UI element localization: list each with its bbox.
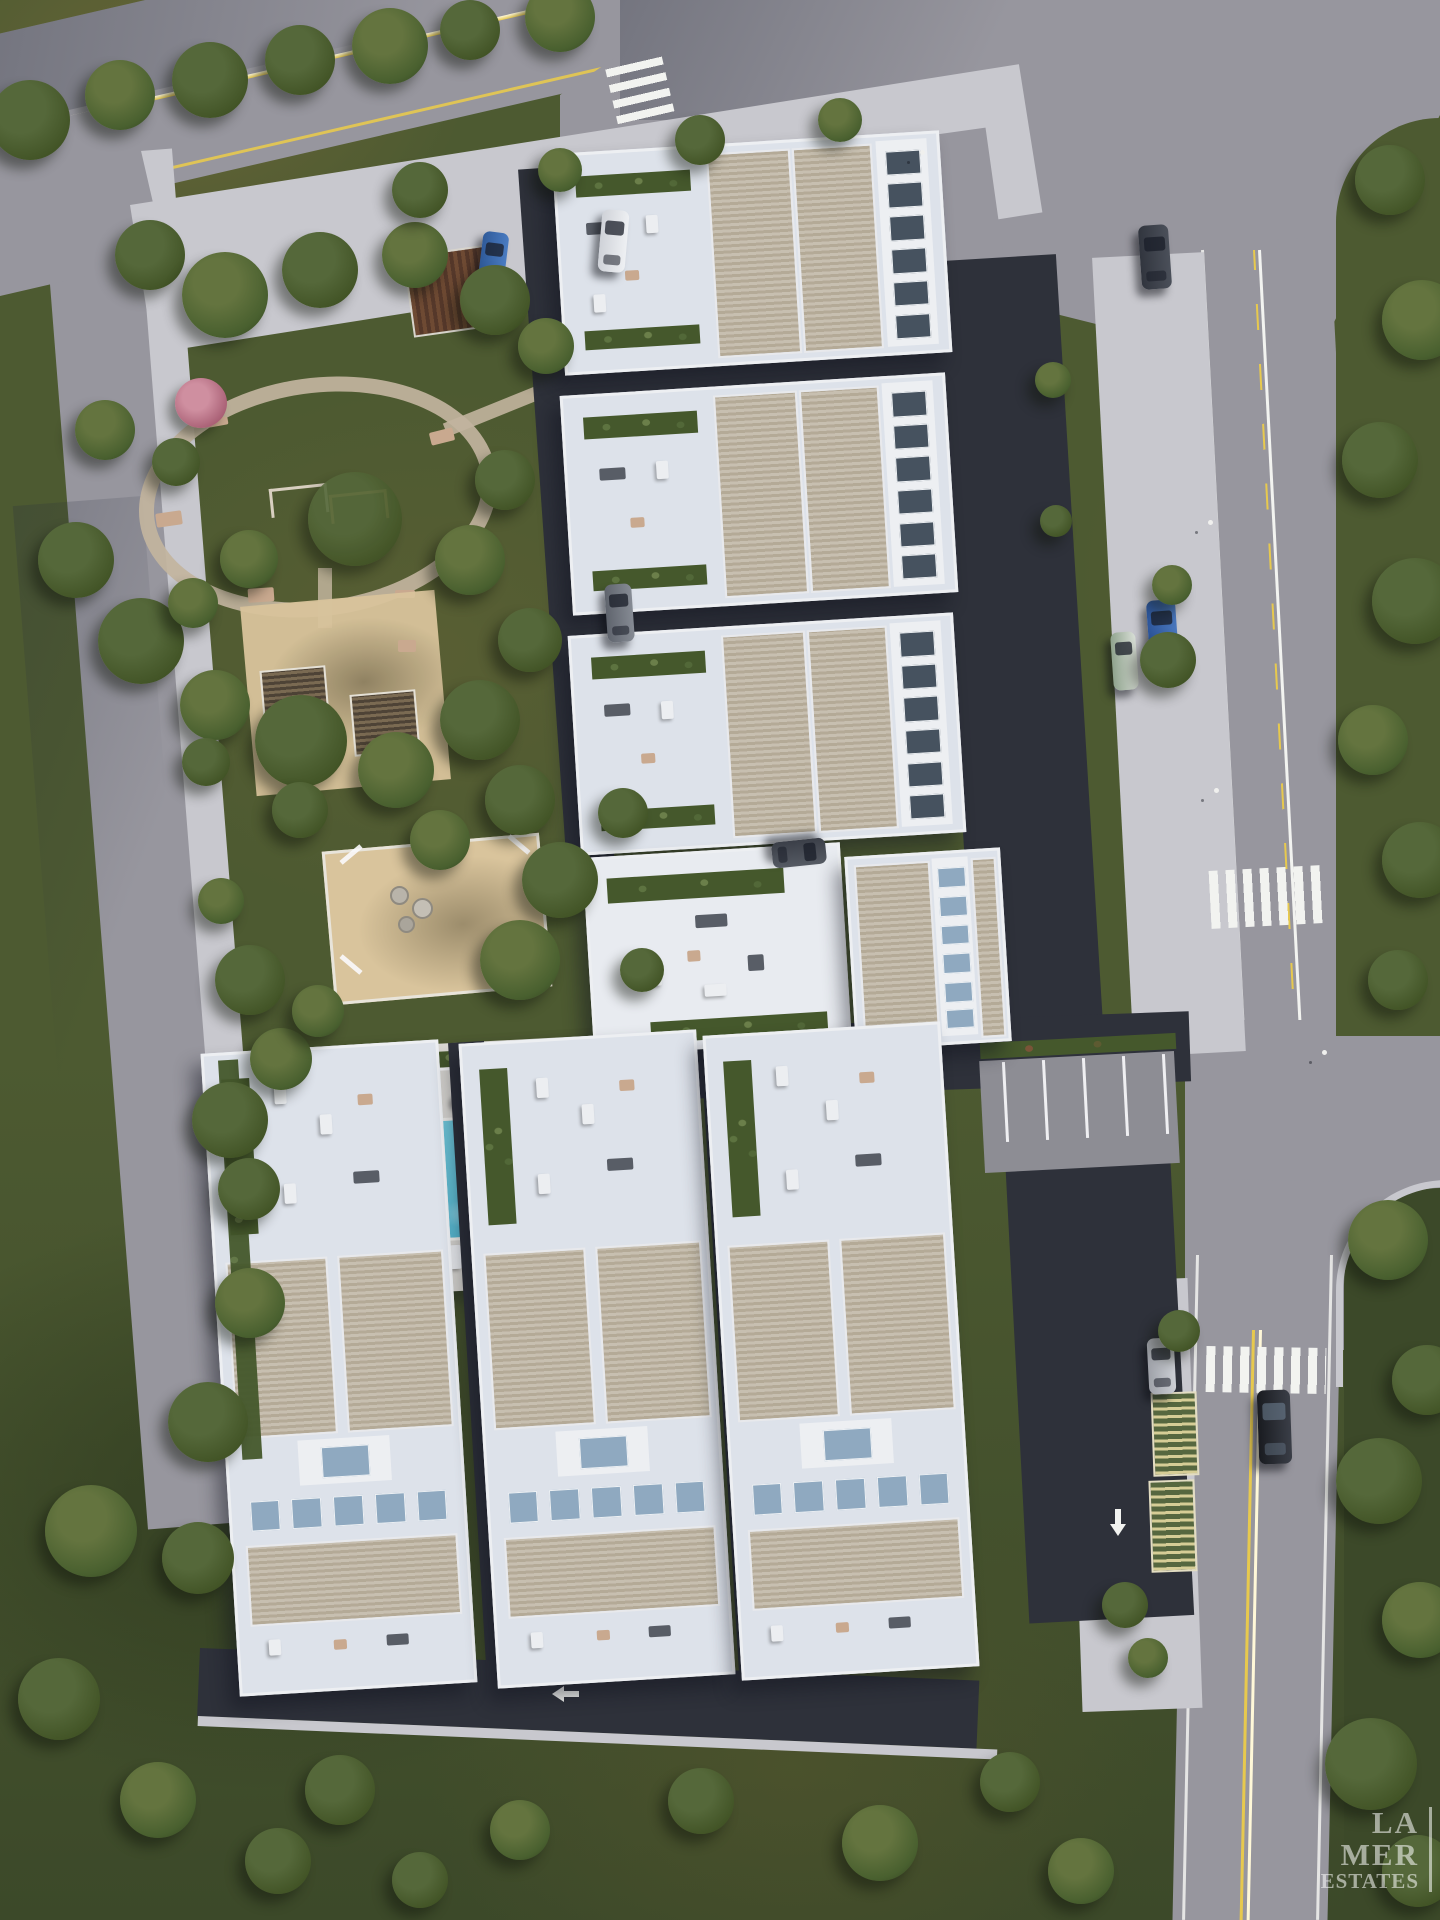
pergola-table xyxy=(398,640,416,652)
tree xyxy=(410,810,470,870)
tree xyxy=(245,1828,311,1894)
apartment-block-6 xyxy=(703,1021,980,1680)
louvered-pergola xyxy=(1148,1479,1197,1573)
street-lamp-icon xyxy=(1322,1050,1327,1055)
tree xyxy=(120,1762,196,1838)
tree xyxy=(1158,1310,1200,1352)
picnic-table xyxy=(248,587,275,603)
tree xyxy=(152,438,200,486)
tree xyxy=(182,252,268,338)
drive-arrow-left-icon xyxy=(552,1686,564,1702)
apartment-block-5 xyxy=(459,1029,736,1688)
tree xyxy=(440,680,520,760)
tree xyxy=(168,578,218,628)
tree xyxy=(75,400,135,460)
tree xyxy=(1035,362,1071,398)
tree xyxy=(1342,422,1418,498)
tree xyxy=(675,115,725,165)
tree xyxy=(1336,1438,1422,1524)
tree xyxy=(382,222,448,288)
tree xyxy=(522,842,598,918)
car-van-street xyxy=(1110,631,1139,691)
tree xyxy=(168,1382,248,1462)
tree xyxy=(1368,950,1428,1010)
tree xyxy=(598,788,648,838)
tree xyxy=(255,695,347,787)
tree xyxy=(620,948,664,992)
drive-arrow-down-icon xyxy=(1110,1524,1126,1536)
tree xyxy=(435,525,505,595)
tree xyxy=(1048,1838,1114,1904)
tree xyxy=(1128,1638,1168,1678)
east-exit-road xyxy=(1280,1030,1440,1195)
tree xyxy=(182,738,230,786)
guest-parking xyxy=(979,1051,1180,1173)
tree xyxy=(215,1268,285,1338)
car-gray-street-north xyxy=(1138,224,1172,290)
aerial-site-render: LA MER ESTATES xyxy=(0,0,1440,1920)
louvered-pergola xyxy=(1151,1391,1200,1477)
tree xyxy=(1348,1200,1428,1280)
tree xyxy=(392,162,448,218)
crosswalk-east-upper xyxy=(1209,865,1324,929)
tree xyxy=(485,765,555,835)
tree xyxy=(308,472,402,566)
play-spinner xyxy=(412,898,433,919)
tree xyxy=(85,60,155,130)
tree xyxy=(668,1768,734,1834)
street-lamp-icon xyxy=(920,150,925,155)
tree xyxy=(192,1082,268,1158)
tree xyxy=(162,1522,234,1594)
tree xyxy=(818,98,862,142)
tree xyxy=(1325,1718,1417,1810)
tree xyxy=(18,1658,100,1740)
street-lamp-icon xyxy=(1214,788,1219,793)
tree xyxy=(1140,632,1196,688)
tree xyxy=(292,985,344,1037)
tree xyxy=(305,1755,375,1825)
tree xyxy=(475,450,535,510)
tree xyxy=(38,522,114,598)
car-white-top xyxy=(597,209,629,273)
tree xyxy=(358,732,434,808)
tree xyxy=(1152,565,1192,605)
watermark-line-3: ESTATES xyxy=(1321,1871,1419,1892)
tree xyxy=(460,265,530,335)
tree xyxy=(1355,145,1425,215)
tree xyxy=(1040,505,1072,537)
tree xyxy=(518,318,574,374)
tree xyxy=(980,1752,1040,1812)
watermark-logo: LA MER ESTATES xyxy=(1321,1807,1432,1892)
tree xyxy=(115,220,185,290)
watermark-line-1: LA xyxy=(1372,1807,1419,1839)
tree xyxy=(1102,1582,1148,1628)
tree xyxy=(480,920,560,1000)
street-lamp-icon xyxy=(1208,520,1213,525)
crosswalk-east-lower xyxy=(1206,1346,1327,1394)
tree xyxy=(498,608,562,672)
watermark-line-2: MER xyxy=(1341,1839,1419,1871)
tree xyxy=(250,1028,312,1090)
tree xyxy=(218,1158,280,1220)
tree xyxy=(220,530,278,588)
tree xyxy=(180,670,250,740)
tree xyxy=(490,1800,550,1860)
tree xyxy=(1338,705,1408,775)
car-black-road xyxy=(1257,1389,1293,1464)
tree xyxy=(392,1852,448,1908)
car-gray-drive xyxy=(604,583,635,643)
tree xyxy=(215,945,285,1015)
play-spinner xyxy=(398,916,415,933)
amenity-roof-terrace xyxy=(582,842,852,1055)
tree xyxy=(440,0,500,60)
tree xyxy=(45,1485,137,1577)
pink-flowering-tree xyxy=(175,378,227,428)
apartment-block-2 xyxy=(560,372,959,615)
tree xyxy=(198,878,244,924)
tree xyxy=(842,1805,918,1881)
play-spinner xyxy=(390,886,409,905)
tree xyxy=(265,25,335,95)
carport-roof xyxy=(844,847,1012,1050)
tree xyxy=(538,148,582,192)
tree xyxy=(282,232,358,308)
tree xyxy=(172,42,248,118)
tree xyxy=(272,782,328,838)
tree xyxy=(352,8,428,84)
